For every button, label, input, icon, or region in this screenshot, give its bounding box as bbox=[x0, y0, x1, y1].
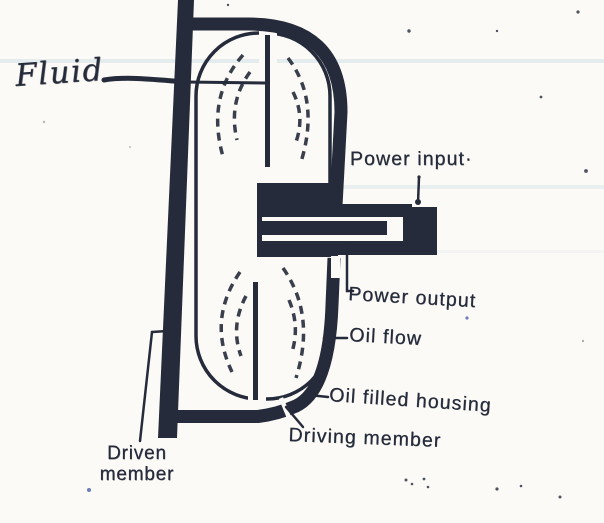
housing-left-wall bbox=[158, 0, 194, 438]
input-shaft-bottom bbox=[280, 241, 437, 255]
power-input-label: Power input· bbox=[350, 148, 473, 171]
fluid-label: Fluid bbox=[14, 52, 105, 94]
driven-member-line2: member bbox=[93, 464, 181, 485]
oil-flow-label: Oil flow bbox=[349, 324, 423, 351]
driven-member-line1: Driven bbox=[93, 443, 181, 464]
scanned-diagram-page: Fluid Power input· Power output Oil flow… bbox=[0, 0, 604, 523]
output-shaft bbox=[261, 221, 387, 235]
driven-member-label: Driven member bbox=[93, 443, 181, 485]
input-shaft-top bbox=[296, 204, 412, 217]
